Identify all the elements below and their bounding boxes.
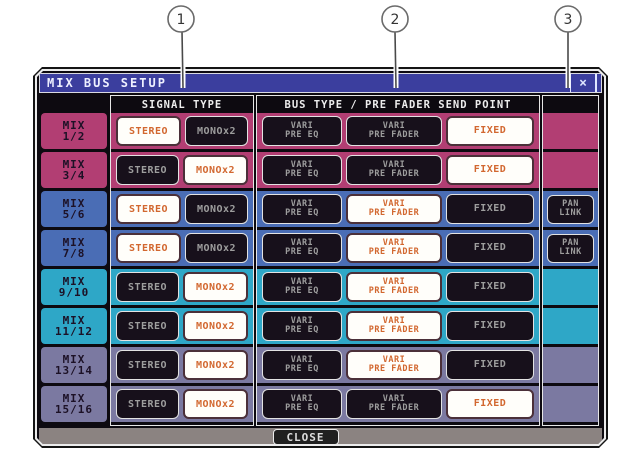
bus-type-cell: VARIPRE EQ VARIPRE FADER FIXED: [257, 347, 539, 386]
stereo-button[interactable]: STEREO: [116, 194, 181, 224]
dialog-frame: MIX BUS SETUP × MIX1/2 MIX3/4 MIX5/6 MIX…: [35, 69, 606, 446]
footer-bar: CLOSE: [39, 428, 602, 446]
svg-text:2: 2: [391, 12, 400, 28]
row-label-mix-3-4: MIX3/4: [41, 152, 107, 188]
stereo-button[interactable]: STEREO: [116, 389, 179, 419]
fixed-button[interactable]: FIXED: [446, 272, 534, 302]
bus-type-cell: VARIPRE EQ VARIPRE FADER FIXED: [257, 386, 539, 425]
dialog-content: MIX BUS SETUP × MIX1/2 MIX3/4 MIX5/6 MIX…: [37, 71, 604, 444]
pan-link-cell: PANLINK: [543, 152, 598, 191]
stereo-button[interactable]: STEREO: [116, 155, 179, 185]
stereo-button[interactable]: STEREO: [116, 116, 181, 146]
bus-type-cell: VARIPRE EQ VARIPRE FADER FIXED: [257, 308, 539, 347]
close-button[interactable]: CLOSE: [273, 429, 339, 445]
vari-pre-fader-button[interactable]: VARIPRE FADER: [346, 194, 442, 224]
stereo-button[interactable]: STEREO: [116, 311, 179, 341]
bus-type-cell: VARIPRE EQ VARIPRE FADER FIXED: [257, 113, 539, 152]
vari-pre-eq-button[interactable]: VARIPRE EQ: [262, 311, 342, 341]
row-label-mix-15-16: MIX15/16: [41, 386, 107, 422]
vari-pre-eq-button[interactable]: VARIPRE EQ: [262, 116, 342, 146]
fixed-button[interactable]: FIXED: [446, 350, 534, 380]
pan-link-cell: PANLINK: [543, 113, 598, 152]
svg-text:1: 1: [177, 12, 186, 28]
pan-link-cell: PANLINK: [543, 230, 598, 269]
vari-pre-eq-button[interactable]: VARIPRE EQ: [262, 155, 342, 185]
stereo-button[interactable]: STEREO: [116, 272, 179, 302]
signal-cell: STEREO MONOx2: [111, 269, 253, 308]
signal-cell: STEREO MONOx2: [111, 308, 253, 347]
svg-text:3: 3: [564, 12, 573, 28]
row-label-mix-7-8: MIX7/8: [41, 230, 107, 266]
monox2-button[interactable]: MONOx2: [183, 311, 248, 341]
row-label-column: MIX1/2 MIX3/4 MIX5/6 MIX7/8 MIX9/10 MIX1…: [41, 95, 107, 425]
vari-pre-eq-button[interactable]: VARIPRE EQ: [262, 233, 342, 263]
vari-pre-fader-button[interactable]: VARIPRE FADER: [346, 116, 442, 146]
pan-link-cell: PANLINK: [543, 308, 598, 347]
signal-cell: STEREO MONOx2: [111, 152, 253, 191]
bus-type-cell: VARIPRE EQ VARIPRE FADER FIXED: [257, 191, 539, 230]
pan-link-button[interactable]: PANLINK: [547, 195, 594, 224]
bus-type-cell: VARIPRE EQ VARIPRE FADER FIXED: [257, 152, 539, 191]
stereo-button[interactable]: STEREO: [116, 350, 179, 380]
signal-type-header: SIGNAL TYPE: [111, 96, 253, 113]
vari-pre-fader-button[interactable]: VARIPRE FADER: [346, 350, 442, 380]
bus-type-header: BUS TYPE / PRE FADER SEND POINT: [257, 96, 539, 113]
monox2-button[interactable]: MONOx2: [185, 194, 248, 224]
stereo-button[interactable]: STEREO: [116, 233, 181, 263]
mix-bus-table: MIX1/2 MIX3/4 MIX5/6 MIX7/8 MIX9/10 MIX1…: [39, 95, 602, 426]
pan-link-cell: PANLINK: [543, 269, 598, 308]
fixed-button[interactable]: FIXED: [446, 194, 534, 224]
pan-link-cell: PANLINK: [543, 386, 598, 425]
row-label-mix-1-2: MIX1/2: [41, 113, 107, 149]
monox2-button[interactable]: MONOx2: [185, 233, 248, 263]
pan-link-group: PANLINK PANLINK PANLINK PANLINK PANLINK …: [542, 95, 599, 426]
title-bar: MIX BUS SETUP ×: [39, 73, 602, 93]
signal-cell: STEREO MONOx2: [111, 230, 253, 269]
vari-pre-fader-button[interactable]: VARIPRE FADER: [346, 311, 442, 341]
fixed-button[interactable]: FIXED: [446, 155, 534, 185]
bus-type-group: BUS TYPE / PRE FADER SEND POINT VARIPRE …: [256, 95, 540, 426]
row-label-mix-11-12: MIX11/12: [41, 308, 107, 344]
signal-cell: STEREO MONOx2: [111, 386, 253, 425]
pan-link-cell: PANLINK: [543, 347, 598, 386]
vari-pre-fader-button[interactable]: VARIPRE FADER: [346, 389, 442, 419]
vari-pre-eq-button[interactable]: VARIPRE EQ: [262, 389, 342, 419]
vari-pre-fader-button[interactable]: VARIPRE FADER: [346, 155, 442, 185]
vari-pre-eq-button[interactable]: VARIPRE EQ: [262, 350, 342, 380]
mix-bus-setup-dialog: MIX BUS SETUP × MIX1/2 MIX3/4 MIX5/6 MIX…: [33, 67, 608, 448]
vari-pre-eq-button[interactable]: VARIPRE EQ: [262, 194, 342, 224]
fixed-button[interactable]: FIXED: [446, 311, 534, 341]
fixed-button[interactable]: FIXED: [446, 116, 534, 146]
pan-link-header: [543, 96, 598, 113]
monox2-button[interactable]: MONOx2: [183, 155, 248, 185]
row-label-mix-9-10: MIX9/10: [41, 269, 107, 305]
pan-link-button[interactable]: PANLINK: [547, 234, 594, 263]
fixed-button[interactable]: FIXED: [446, 389, 534, 419]
vari-pre-eq-button[interactable]: VARIPRE EQ: [262, 272, 342, 302]
close-x-icon[interactable]: ×: [570, 74, 597, 92]
vari-pre-fader-button[interactable]: VARIPRE FADER: [346, 272, 442, 302]
monox2-button[interactable]: MONOx2: [183, 389, 248, 419]
pan-link-cell: PANLINK: [543, 191, 598, 230]
dialog-title: MIX BUS SETUP: [40, 76, 167, 90]
row-label-mix-13-14: MIX13/14: [41, 347, 107, 383]
monox2-button[interactable]: MONOx2: [185, 116, 248, 146]
bus-type-cell: VARIPRE EQ VARIPRE FADER FIXED: [257, 269, 539, 308]
signal-cell: STEREO MONOx2: [111, 347, 253, 386]
row-label-mix-5-6: MIX5/6: [41, 191, 107, 227]
label-header-spacer: [41, 95, 107, 113]
signal-type-group: SIGNAL TYPE STEREO MONOx2 STEREO MONOx2 …: [110, 95, 254, 426]
fixed-button[interactable]: FIXED: [446, 233, 534, 263]
signal-cell: STEREO MONOx2: [111, 113, 253, 152]
vari-pre-fader-button[interactable]: VARIPRE FADER: [346, 233, 442, 263]
monox2-button[interactable]: MONOx2: [183, 272, 248, 302]
monox2-button[interactable]: MONOx2: [183, 350, 248, 380]
signal-cell: STEREO MONOx2: [111, 191, 253, 230]
bus-type-cell: VARIPRE EQ VARIPRE FADER FIXED: [257, 230, 539, 269]
